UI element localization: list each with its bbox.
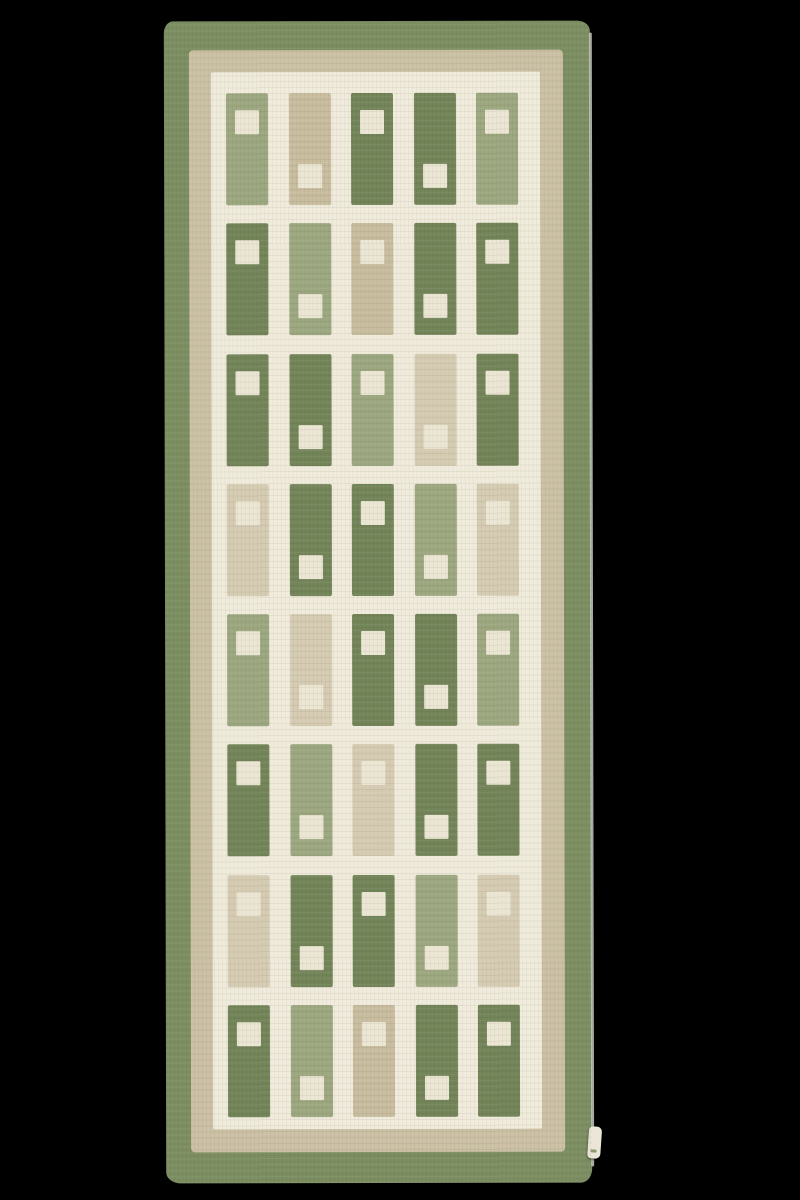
cell-inner-square bbox=[486, 370, 510, 394]
rug-cell bbox=[415, 614, 457, 726]
cell-inner-square bbox=[236, 762, 260, 786]
rug-cell bbox=[415, 744, 457, 856]
rug-cell bbox=[290, 745, 332, 857]
rug-cell bbox=[289, 223, 331, 335]
label-tag bbox=[587, 1126, 602, 1159]
rug-cell bbox=[414, 223, 456, 335]
cell-inner-square bbox=[299, 685, 323, 709]
selvedge-highlight bbox=[589, 33, 594, 1167]
cell-inner-square bbox=[236, 371, 260, 395]
cell-inner-square bbox=[486, 631, 510, 655]
rug-cell bbox=[289, 354, 331, 466]
cell-inner-square bbox=[361, 631, 385, 655]
cell-inner-square bbox=[423, 555, 447, 579]
rug-cell bbox=[477, 614, 519, 726]
rug-cell bbox=[289, 484, 331, 596]
rug-cell bbox=[413, 93, 455, 205]
cell-inner-square bbox=[362, 892, 386, 916]
cell-inner-square bbox=[298, 294, 322, 318]
cell-inner-square bbox=[486, 501, 510, 525]
rug-cell bbox=[227, 614, 269, 726]
rug-cream-field bbox=[211, 72, 542, 1130]
rug-cell bbox=[290, 614, 332, 726]
rug-cell bbox=[351, 93, 393, 205]
rug-cell bbox=[351, 354, 393, 466]
cell-inner-square bbox=[299, 1076, 323, 1100]
cell-inner-square bbox=[361, 501, 385, 525]
cell-inner-square bbox=[424, 1076, 448, 1100]
cell-inner-square bbox=[298, 164, 322, 188]
rug-cell bbox=[228, 875, 270, 987]
rug-grid bbox=[226, 93, 520, 1118]
rug-cell bbox=[415, 875, 457, 987]
rug-cell bbox=[290, 875, 332, 987]
photo-background bbox=[0, 0, 800, 1200]
rug-cell bbox=[476, 93, 518, 205]
rug-cell bbox=[351, 223, 393, 335]
cell-inner-square bbox=[236, 631, 260, 655]
cell-inner-square bbox=[236, 501, 260, 525]
rug-cell bbox=[226, 93, 268, 205]
cell-inner-square bbox=[361, 371, 385, 395]
cell-inner-square bbox=[237, 892, 261, 916]
rug-cell bbox=[352, 744, 394, 856]
cell-inner-square bbox=[360, 110, 384, 134]
rug-cell bbox=[414, 353, 456, 465]
rug-cell bbox=[290, 1005, 332, 1117]
cell-inner-square bbox=[235, 110, 259, 134]
rug-cell bbox=[353, 875, 395, 987]
rug-cell bbox=[226, 224, 268, 336]
rug-cell bbox=[228, 1005, 270, 1117]
cell-inner-square bbox=[423, 294, 447, 318]
cell-inner-square bbox=[487, 892, 511, 916]
cell-inner-square bbox=[423, 164, 447, 188]
cell-inner-square bbox=[485, 110, 509, 134]
rug-cell bbox=[353, 1005, 395, 1117]
rug-cell bbox=[414, 484, 456, 596]
cell-inner-square bbox=[424, 815, 448, 839]
cell-inner-square bbox=[237, 1022, 261, 1046]
cell-inner-square bbox=[362, 1022, 386, 1046]
rug-cell bbox=[352, 484, 394, 596]
cell-inner-square bbox=[424, 946, 448, 970]
rug-cell bbox=[477, 744, 519, 856]
cell-inner-square bbox=[423, 424, 447, 448]
rug-cell bbox=[476, 353, 518, 465]
rug-cell bbox=[226, 354, 268, 466]
cell-inner-square bbox=[424, 685, 448, 709]
cell-inner-square bbox=[487, 1022, 511, 1046]
rug bbox=[164, 21, 592, 1184]
rug-cell bbox=[478, 1005, 520, 1117]
rug-cell bbox=[227, 484, 269, 596]
rug-cell bbox=[478, 874, 520, 986]
rug-cell bbox=[288, 93, 330, 205]
cell-inner-square bbox=[299, 946, 323, 970]
rug-cell bbox=[227, 745, 269, 857]
cell-inner-square bbox=[298, 425, 322, 449]
cell-inner-square bbox=[299, 816, 323, 840]
cell-inner-square bbox=[298, 555, 322, 579]
rug-cell bbox=[476, 223, 518, 335]
cell-inner-square bbox=[235, 241, 259, 265]
cell-inner-square bbox=[485, 240, 509, 264]
cell-inner-square bbox=[361, 761, 385, 785]
rug-cell bbox=[477, 484, 519, 596]
rug-cell bbox=[415, 1005, 457, 1117]
cell-inner-square bbox=[486, 761, 510, 785]
rug-cell bbox=[352, 614, 394, 726]
cell-inner-square bbox=[360, 240, 384, 264]
